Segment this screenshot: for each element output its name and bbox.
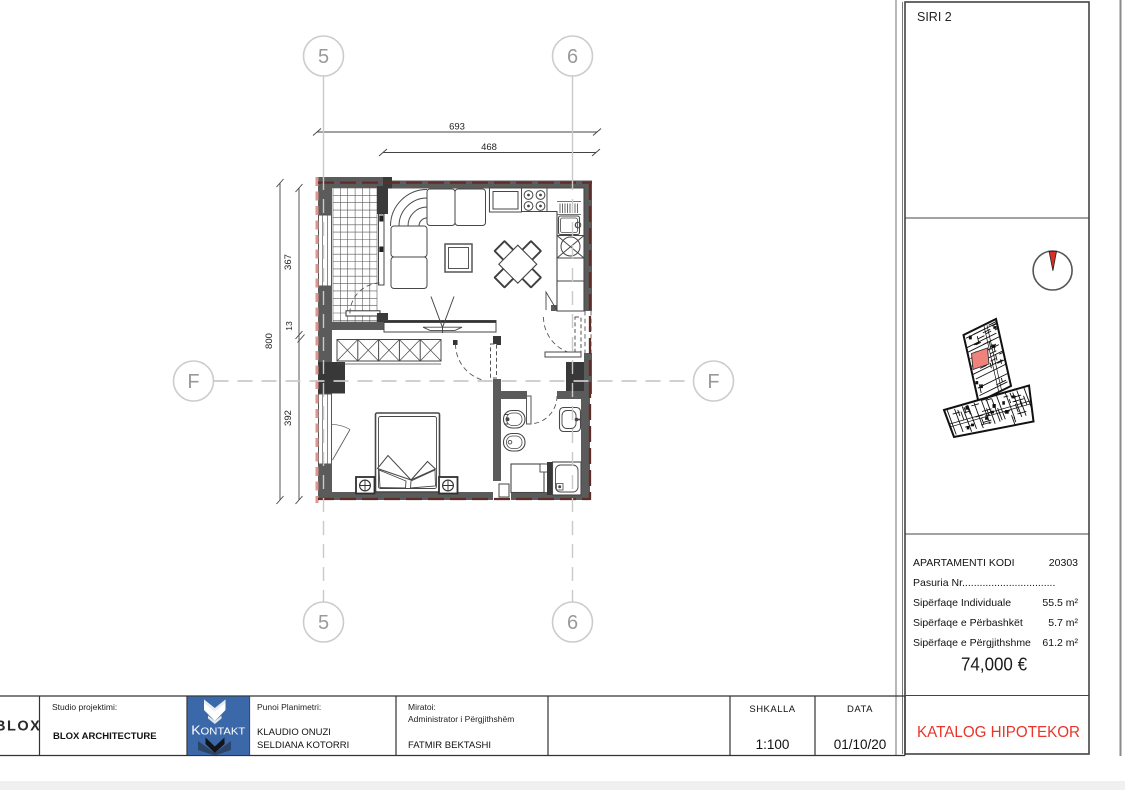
svg-text:367: 367: [283, 254, 294, 270]
svg-text:13: 13: [284, 321, 294, 331]
svg-text:Studio projektimi:: Studio projektimi:: [52, 702, 117, 712]
svg-text:KLAUDIO ONUZI: KLAUDIO ONUZI: [257, 727, 331, 738]
svg-text:KONTAKT: KONTAKT: [191, 723, 246, 738]
svg-text:F: F: [187, 371, 199, 393]
svg-text:800: 800: [264, 333, 275, 349]
svg-text:5: 5: [318, 46, 329, 68]
svg-text:SHKALLA: SHKALLA: [749, 704, 795, 715]
svg-text:Administrator i Përgjithshëm: Administrator i Përgjithshëm: [408, 714, 514, 724]
svg-text:KATALOG HIPOTEKOR: KATALOG HIPOTEKOR: [917, 724, 1080, 741]
svg-text:BLOX ARCHITECTURE: BLOX ARCHITECTURE: [53, 731, 157, 742]
svg-text:693: 693: [449, 122, 465, 133]
svg-text:74,000 €: 74,000 €: [961, 654, 1028, 675]
svg-text:SELDIANA KOTORRI: SELDIANA KOTORRI: [257, 740, 349, 751]
svg-text:Punoi Planimetri:: Punoi Planimetri:: [257, 702, 321, 712]
svg-text:6: 6: [567, 612, 578, 634]
svg-text:61.2 m²: 61.2 m²: [1042, 637, 1078, 649]
svg-text:5.7 m²: 5.7 m²: [1048, 617, 1078, 629]
svg-text:1:100: 1:100: [756, 737, 790, 752]
svg-text:APARTAMENTI KODI: APARTAMENTI KODI: [913, 557, 1015, 569]
svg-text:55.5 m²: 55.5 m²: [1042, 597, 1078, 609]
svg-text:5: 5: [318, 612, 329, 634]
svg-text:01/10/20: 01/10/20: [834, 737, 887, 752]
svg-text:SIRI 2: SIRI 2: [917, 10, 952, 24]
svg-text:Pasuria Nr....................: Pasuria Nr..............................…: [913, 577, 1055, 589]
svg-text:Sipërfaqe Individuale: Sipërfaqe Individuale: [913, 597, 1011, 609]
svg-text:BLOX: BLOX: [0, 719, 41, 735]
svg-text:Miratoi:: Miratoi:: [408, 702, 436, 712]
svg-text:Sipërfaqe e Përbashkët: Sipërfaqe e Përbashkët: [913, 617, 1023, 629]
svg-text:FATMIR BEKTASHI: FATMIR BEKTASHI: [408, 740, 491, 751]
svg-text:6: 6: [567, 46, 578, 68]
svg-text:F: F: [707, 371, 719, 393]
svg-text:20303: 20303: [1049, 557, 1078, 569]
svg-text:Sipërfaqe e Përgjithshme: Sipërfaqe e Përgjithshme: [913, 637, 1031, 649]
svg-text:468: 468: [481, 142, 497, 153]
svg-text:DATA: DATA: [847, 704, 873, 715]
svg-text:392: 392: [283, 410, 294, 426]
